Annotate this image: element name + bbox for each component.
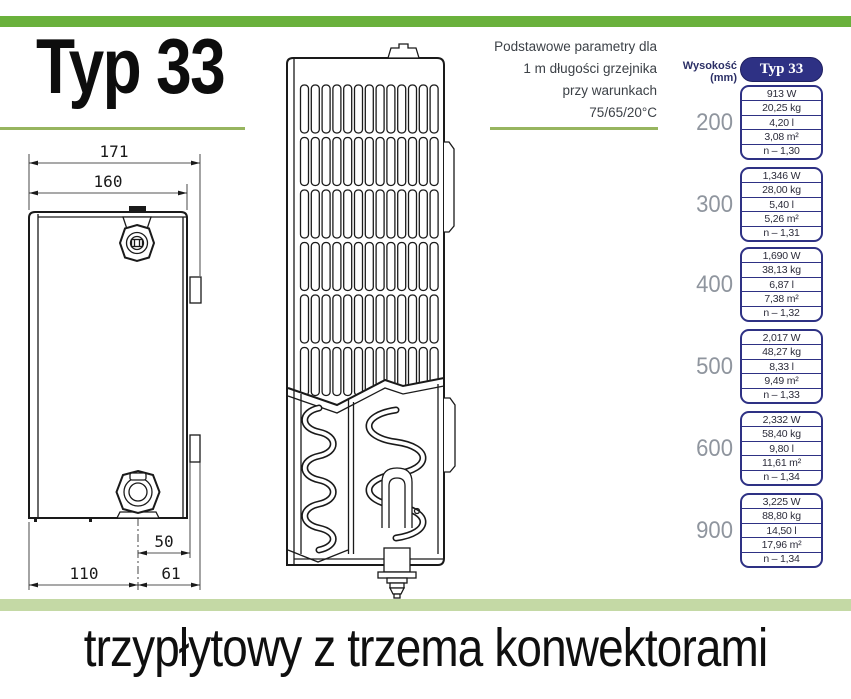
dim-offset-110: 110 [70,564,99,583]
dim-offset-61: 61 [161,564,180,583]
spec-volume: 14,50 l [742,523,821,537]
spec-exponent: n – 1,30 [742,144,821,158]
spec-exponent: n – 1,34 [742,470,821,484]
table-group-600: 600 2,332 W 58,40 kg 9,80 l 11,61 m² n –… [660,411,851,486]
height-value: 200 [666,109,733,137]
spec-weight: 38,13 kg [742,262,821,276]
spec-cells: 2,017 W 48,27 kg 8,33 l 9,49 m² n – 1,33 [740,329,823,404]
table-group-300: 300 1,346 W 28,00 kg 5,40 l 5,26 m² n – … [660,167,851,242]
spec-volume: 6,87 l [742,277,821,291]
height-column-label: Wysokość (mm) [660,60,737,84]
spec-cells: 2,332 W 58,40 kg 9,80 l 11,61 m² n – 1,3… [740,411,823,486]
spec-area: 9,49 m² [742,373,821,387]
table-header-badge: Typ 33 [740,57,823,82]
datasheet-page: Typ 33 Podstawowe parametry dla 1 m dług… [0,0,851,699]
spec-area: 7,38 m² [742,291,821,305]
type-caption: trzypłytowy z trzema konwektorami [64,617,787,679]
spec-area: 3,08 m² [742,129,821,143]
spec-power: 1,690 W [742,249,821,262]
spec-table: Wysokość (mm) Typ 33 200 913 W 20,25 kg … [660,40,851,580]
height-value: 500 [666,353,733,381]
height-value: 300 [666,191,733,219]
spec-volume: 5,40 l [742,197,821,211]
front-view-drawing [278,38,468,603]
spec-area: 11,61 m² [742,455,821,469]
spec-exponent: n – 1,32 [742,306,821,320]
bottom-pale-bar [0,599,851,611]
spec-exponent: n – 1,34 [742,552,821,566]
side-view-drawing: 171 160 50 [25,140,240,600]
note-underline [490,127,658,130]
spec-cells: 1,346 W 28,00 kg 5,40 l 5,26 m² n – 1,31 [740,167,823,242]
spec-weight: 28,00 kg [742,182,821,196]
dim-offset-50: 50 [154,532,173,551]
table-group-200: 200 913 W 20,25 kg 4,20 l 3,08 m² n – 1,… [660,85,851,160]
spec-area: 17,96 m² [742,537,821,551]
spec-cells: 913 W 20,25 kg 4,20 l 3,08 m² n – 1,30 [740,85,823,160]
spec-exponent: n – 1,31 [742,226,821,240]
height-value: 400 [666,271,733,299]
title-underline [0,127,245,130]
table-group-900: 900 3,225 W 88,80 kg 14,50 l 17,96 m² n … [660,493,851,568]
dim-total-width: 171 [100,142,129,161]
spec-volume: 8,33 l [742,359,821,373]
spec-volume: 4,20 l [742,115,821,129]
spec-cells: 1,690 W 38,13 kg 6,87 l 7,38 m² n – 1,32 [740,247,823,322]
table-group-500: 500 2,017 W 48,27 kg 8,33 l 9,49 m² n – … [660,329,851,404]
height-value: 900 [666,517,733,545]
spec-power: 913 W [742,87,821,100]
spec-volume: 9,80 l [742,441,821,455]
height-value: 600 [666,435,733,463]
spec-exponent: n – 1,33 [742,388,821,402]
spec-weight: 88,80 kg [742,508,821,522]
table-group-400: 400 1,690 W 38,13 kg 6,87 l 7,38 m² n – … [660,247,851,322]
page-title: Typ 33 [36,26,224,108]
spec-power: 3,225 W [742,495,821,508]
spec-area: 5,26 m² [742,211,821,225]
spec-cells: 3,225 W 88,80 kg 14,50 l 17,96 m² n – 1,… [740,493,823,568]
spec-weight: 58,40 kg [742,426,821,440]
spec-weight: 20,25 kg [742,100,821,114]
spec-power: 2,017 W [742,331,821,344]
spec-power: 2,332 W [742,413,821,426]
dim-core-width: 160 [94,172,123,191]
spec-power: 1,346 W [742,169,821,182]
spec-weight: 48,27 kg [742,344,821,358]
